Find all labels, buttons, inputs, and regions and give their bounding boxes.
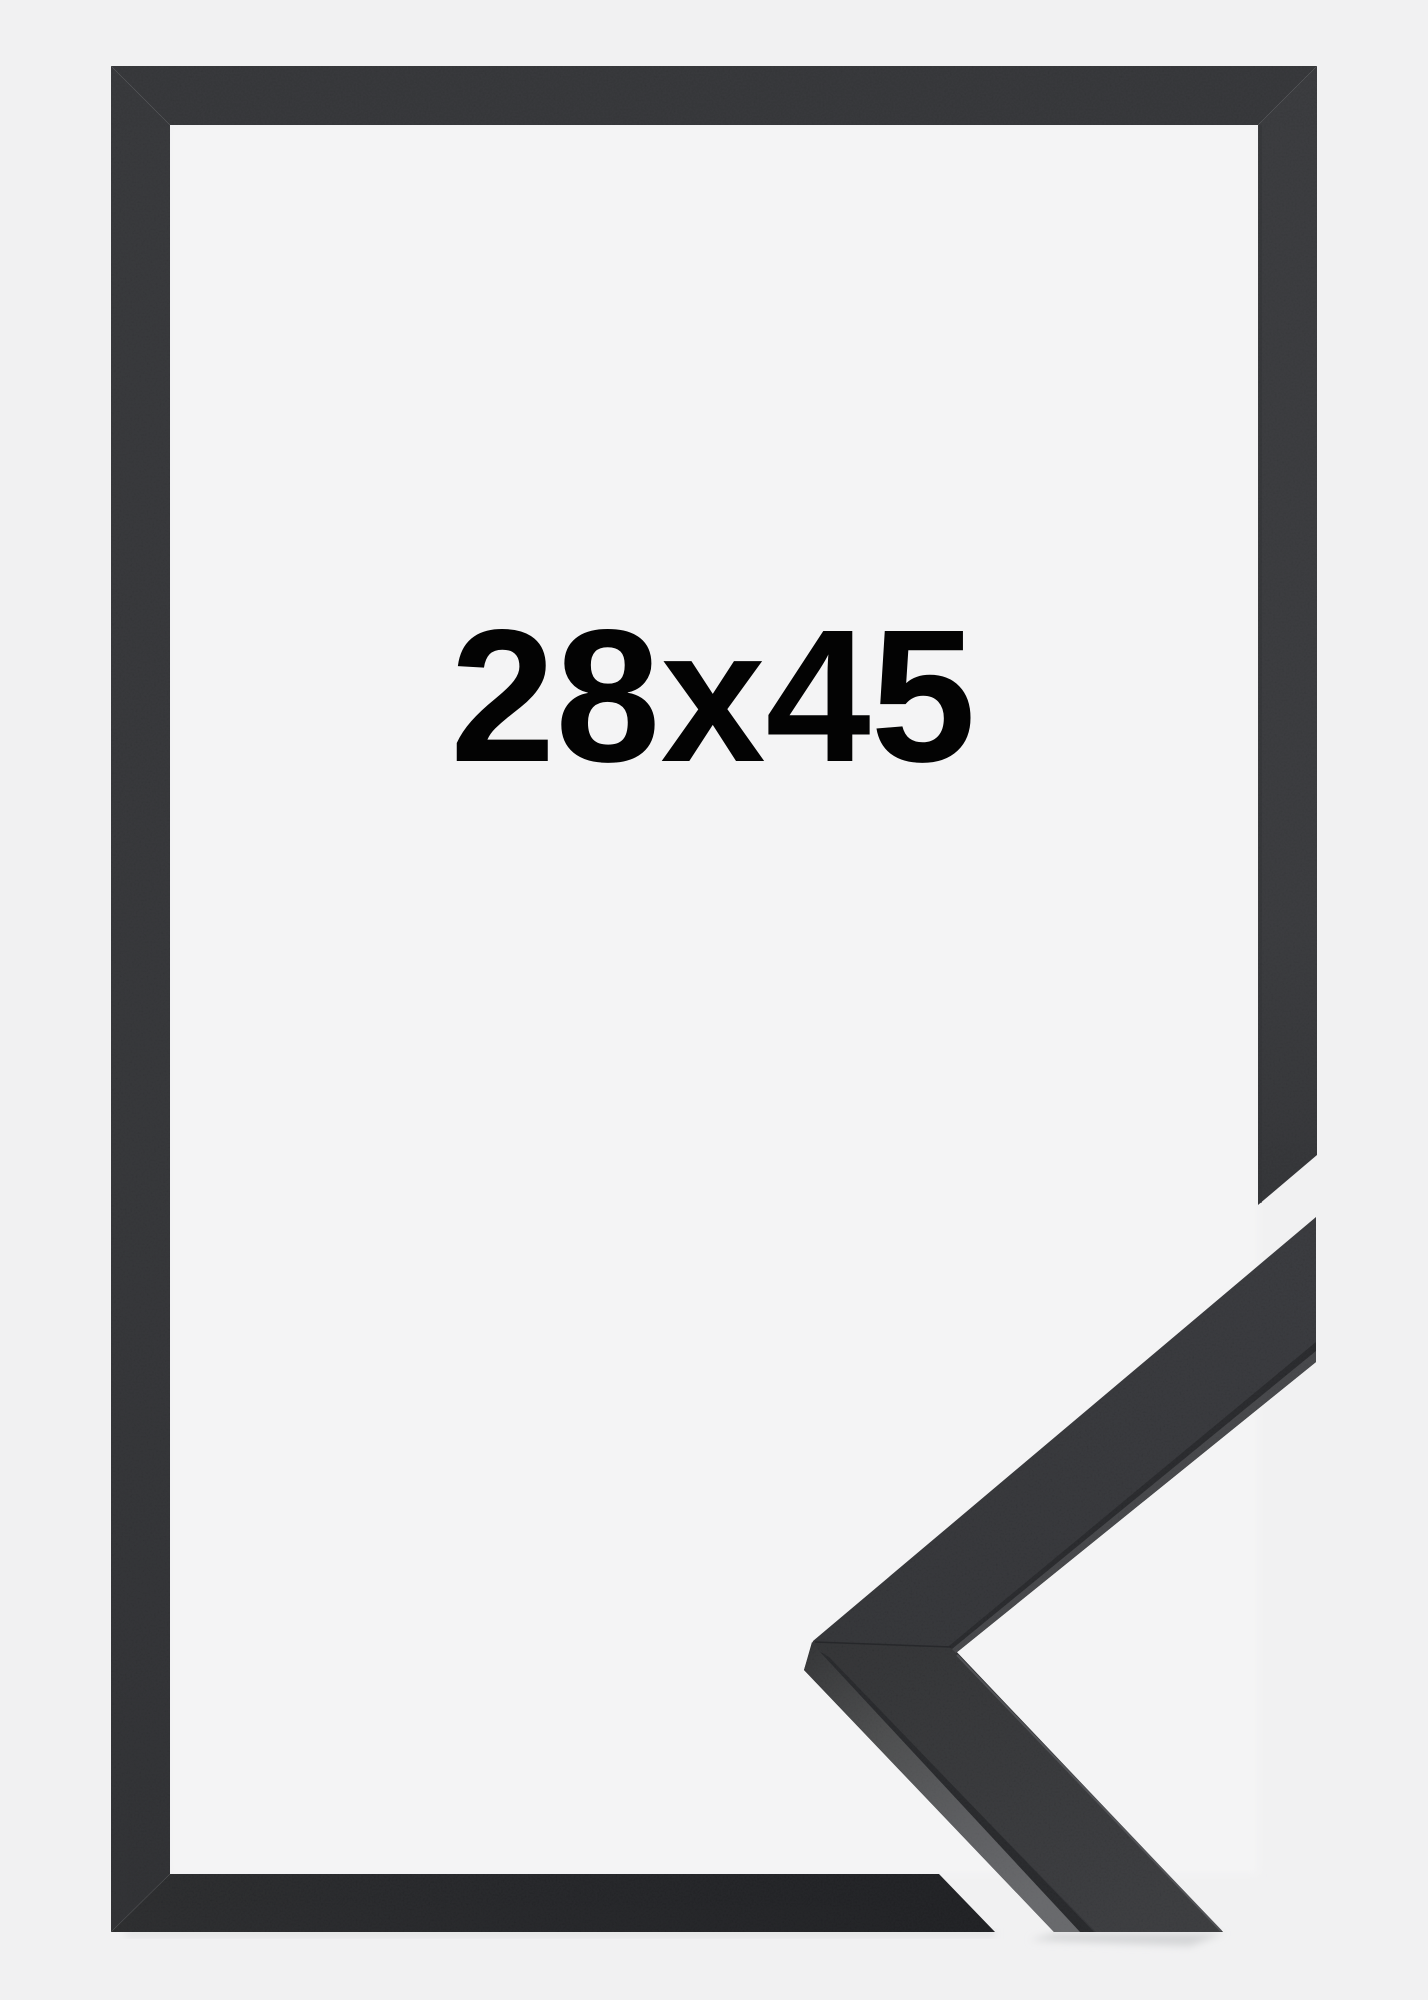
svg-text:28x45: 28x45: [450, 591, 976, 802]
